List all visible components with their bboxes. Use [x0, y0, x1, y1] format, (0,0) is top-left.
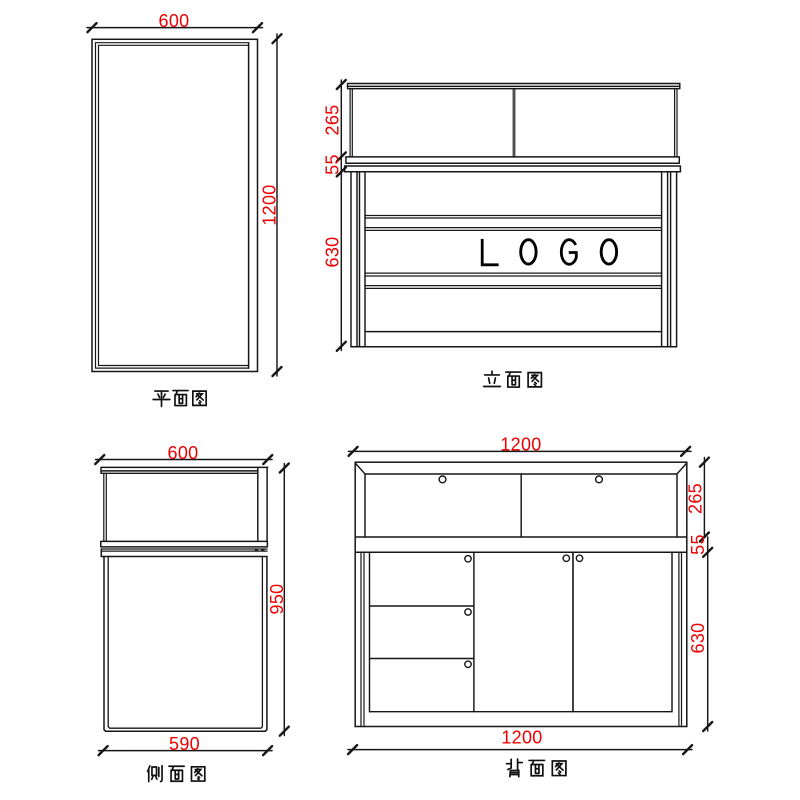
svg-text:55: 55: [688, 534, 708, 555]
svg-text:630: 630: [688, 623, 708, 654]
svg-text:1200: 1200: [500, 435, 541, 455]
svg-text:265: 265: [686, 483, 706, 514]
svg-text:1200: 1200: [501, 728, 542, 748]
svg-text:265: 265: [323, 105, 343, 136]
svg-text:630: 630: [323, 237, 343, 268]
svg-text:600: 600: [168, 443, 199, 463]
svg-text:950: 950: [267, 584, 287, 615]
svg-text:590: 590: [169, 734, 200, 754]
svg-text:55: 55: [323, 154, 343, 175]
svg-text:600: 600: [159, 11, 190, 31]
svg-text:1200: 1200: [260, 184, 280, 225]
